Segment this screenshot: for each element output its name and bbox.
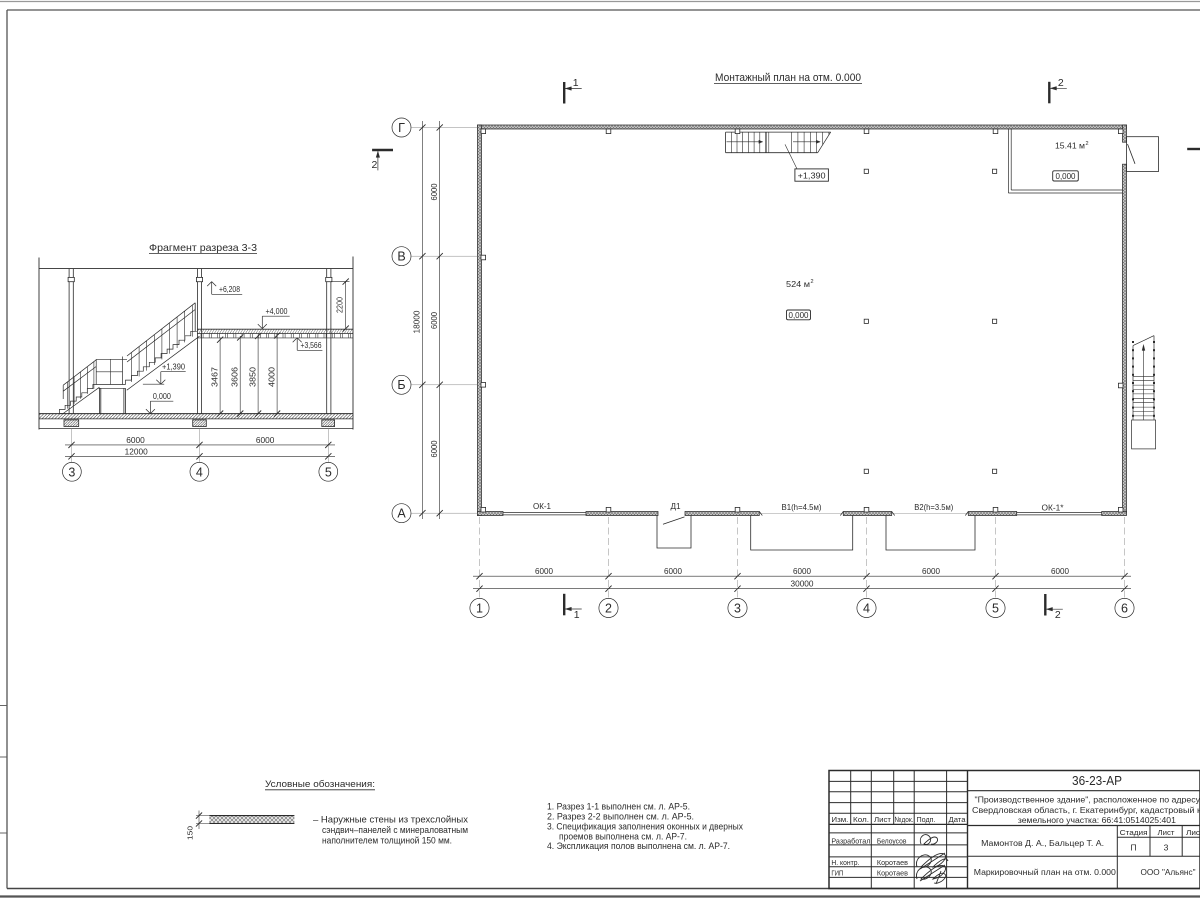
svg-text:15.41 м: 15.41 м xyxy=(1055,142,1085,151)
svg-text:В: В xyxy=(397,250,405,264)
svg-text:3850: 3850 xyxy=(247,367,257,387)
svg-text:0,000: 0,000 xyxy=(1056,172,1076,181)
svg-text:+1,390: +1,390 xyxy=(162,362,185,372)
svg-text:Монтажный план на отм. 0.000: Монтажный план на отм. 0.000 xyxy=(715,72,861,84)
svg-text:2200: 2200 xyxy=(336,297,345,313)
svg-text:Г: Г xyxy=(398,121,405,135)
svg-text:2. Разрез 2-2 выполнен см. л.: 2. Разрез 2-2 выполнен см. л. АР-5. xyxy=(547,811,694,821)
svg-text:+3,566: +3,566 xyxy=(301,340,322,350)
svg-text:Подп.: Подп. xyxy=(917,815,936,824)
svg-text:3606: 3606 xyxy=(229,367,239,387)
svg-text:Кол.: Кол. xyxy=(853,815,869,824)
svg-text:3: 3 xyxy=(1164,843,1169,853)
svg-text:Коротаев: Коротаев xyxy=(877,858,908,867)
svg-text:36-23-АР: 36-23-АР xyxy=(1072,773,1122,788)
svg-text:Фрагмент разреза 3-3: Фрагмент разреза 3-3 xyxy=(149,242,257,254)
svg-text:6000: 6000 xyxy=(1051,567,1069,576)
svg-text:1: 1 xyxy=(574,609,580,621)
svg-text:Коротаев: Коротаев xyxy=(877,869,908,878)
svg-text:"Производственное здание", рас: "Производственное здание", расположенное… xyxy=(975,795,1200,805)
svg-text:Изм.: Изм. xyxy=(831,815,848,824)
svg-text:6000: 6000 xyxy=(430,183,439,200)
svg-text:Стадия: Стадия xyxy=(1120,828,1148,837)
svg-text:6000: 6000 xyxy=(430,312,439,329)
svg-text:6000: 6000 xyxy=(126,436,145,445)
svg-text:150: 150 xyxy=(185,826,194,840)
svg-text:Д1: Д1 xyxy=(670,502,681,511)
svg-text:ОК-1*: ОК-1* xyxy=(1042,504,1065,513)
svg-text:1: 1 xyxy=(476,601,483,615)
svg-text:6000: 6000 xyxy=(535,567,553,576)
svg-text:4000: 4000 xyxy=(266,367,276,387)
svg-text:ООО "Альянс": ООО "Альянс" xyxy=(1141,867,1196,877)
svg-text:6000: 6000 xyxy=(664,567,682,576)
svg-text:18000: 18000 xyxy=(413,310,422,333)
svg-text:– Наружные стены из трехслойны: – Наружные стены из трехслойных xyxy=(313,815,469,825)
svg-text:6000: 6000 xyxy=(430,440,439,457)
svg-text:5: 5 xyxy=(992,601,999,615)
svg-text:2: 2 xyxy=(1058,77,1064,89)
svg-text:Разработал: Разработал xyxy=(831,836,870,845)
svg-text:наполнителем толщиной 150 мм.: наполнителем толщиной 150 мм. xyxy=(322,836,452,846)
svg-text:Свердловская область, г. Екате: Свердловская область, г. Екатеринбург, к… xyxy=(972,805,1200,815)
svg-text:+1,390: +1,390 xyxy=(798,170,826,180)
svg-text:2: 2 xyxy=(1085,141,1088,147)
svg-text:6000: 6000 xyxy=(922,567,940,576)
svg-text:Б: Б xyxy=(397,378,405,392)
svg-text:3. Спецификация заполнения око: 3. Спецификация заполнения оконных и две… xyxy=(547,822,744,832)
svg-text:Лист: Лист xyxy=(1158,828,1176,837)
svg-text:№док.: №док. xyxy=(895,815,914,824)
svg-text:2: 2 xyxy=(1055,609,1061,621)
svg-text:Маркировочный план на отм. 0.0: Маркировочный план на отм. 0.000 xyxy=(974,867,1116,877)
svg-text:земельного участка: 66:41:0514: земельного участка: 66:41:0514025:401 xyxy=(1018,815,1176,825)
svg-text:Лист: Лист xyxy=(874,815,892,824)
svg-text:Н. контр.: Н. контр. xyxy=(831,858,859,867)
svg-text:4: 4 xyxy=(863,601,870,615)
svg-text:6000: 6000 xyxy=(793,567,811,576)
svg-text:6000: 6000 xyxy=(256,436,275,445)
svg-text:12000: 12000 xyxy=(125,448,148,457)
svg-text:5: 5 xyxy=(325,465,332,479)
svg-text:3467: 3467 xyxy=(209,367,219,387)
svg-text:2: 2 xyxy=(372,159,378,171)
svg-text:2: 2 xyxy=(605,601,612,615)
svg-text:3: 3 xyxy=(68,465,75,479)
svg-text:6: 6 xyxy=(1121,601,1128,615)
svg-text:Лис: Лис xyxy=(1186,828,1200,837)
svg-text:4: 4 xyxy=(196,465,203,479)
svg-text:В2(h=3.5м): В2(h=3.5м) xyxy=(914,503,953,512)
svg-text:+4,000: +4,000 xyxy=(266,306,288,316)
svg-text:2: 2 xyxy=(810,279,813,285)
svg-text:А: А xyxy=(397,507,406,521)
svg-text:0,000: 0,000 xyxy=(789,311,809,320)
svg-text:сэндвич–панелей с минераловатн: сэндвич–панелей с минераловатным xyxy=(322,825,468,835)
svg-text:+6,208: +6,208 xyxy=(219,284,240,294)
svg-text:П: П xyxy=(1131,843,1137,853)
svg-text:3: 3 xyxy=(734,601,741,615)
svg-text:В1(h=4.5м): В1(h=4.5м) xyxy=(782,503,822,512)
svg-text:ГИП: ГИП xyxy=(831,869,843,878)
svg-text:Дата: Дата xyxy=(949,815,967,824)
svg-text:Белоусов: Белоусов xyxy=(877,836,907,845)
svg-text:30000: 30000 xyxy=(791,579,814,588)
svg-text:524 м: 524 м xyxy=(786,279,810,289)
svg-text:1: 1 xyxy=(573,77,579,89)
svg-text:Мамонтов Д. А., Бальцер Т. А.: Мамонтов Д. А., Бальцер Т. А. xyxy=(981,838,1104,848)
svg-text:4. Экспликация полов выполнена: 4. Экспликация полов выполнена см. л. АР… xyxy=(547,841,730,851)
svg-text:ОК-1: ОК-1 xyxy=(533,502,551,511)
svg-text:Условные обозначения:: Условные обозначения: xyxy=(265,779,375,790)
svg-text:1. Разрез 1-1 выполнен см. л.: 1. Разрез 1-1 выполнен см. л. АР-5. xyxy=(547,801,690,811)
svg-text:0,000: 0,000 xyxy=(153,391,171,401)
